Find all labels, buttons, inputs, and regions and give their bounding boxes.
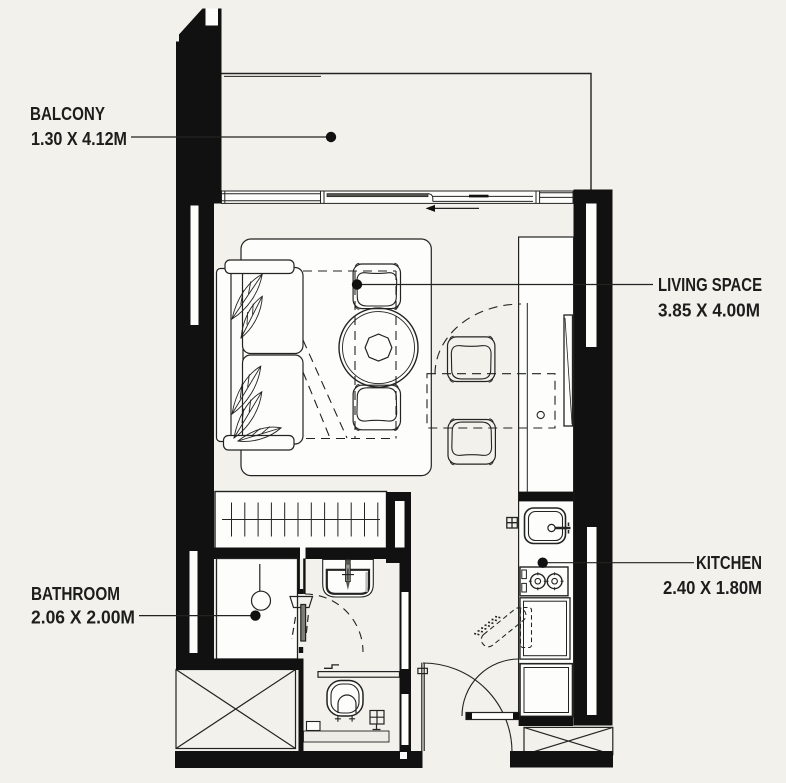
svg-text:LIVING SPACE: LIVING SPACE: [658, 275, 762, 295]
svg-text:BALCONY: BALCONY: [30, 104, 105, 124]
svg-text:BATHROOM: BATHROOM: [31, 584, 120, 604]
svg-text:2.40 X 1.80M: 2.40 X 1.80M: [663, 578, 762, 598]
svg-text:1.30 X 4.12M: 1.30 X 4.12M: [31, 129, 127, 149]
svg-text:KITCHEN: KITCHEN: [696, 553, 762, 573]
svg-text:2.06 X 2.00M: 2.06 X 2.00M: [31, 608, 135, 628]
svg-text:3.85 X 4.00M: 3.85 X 4.00M: [658, 301, 760, 321]
